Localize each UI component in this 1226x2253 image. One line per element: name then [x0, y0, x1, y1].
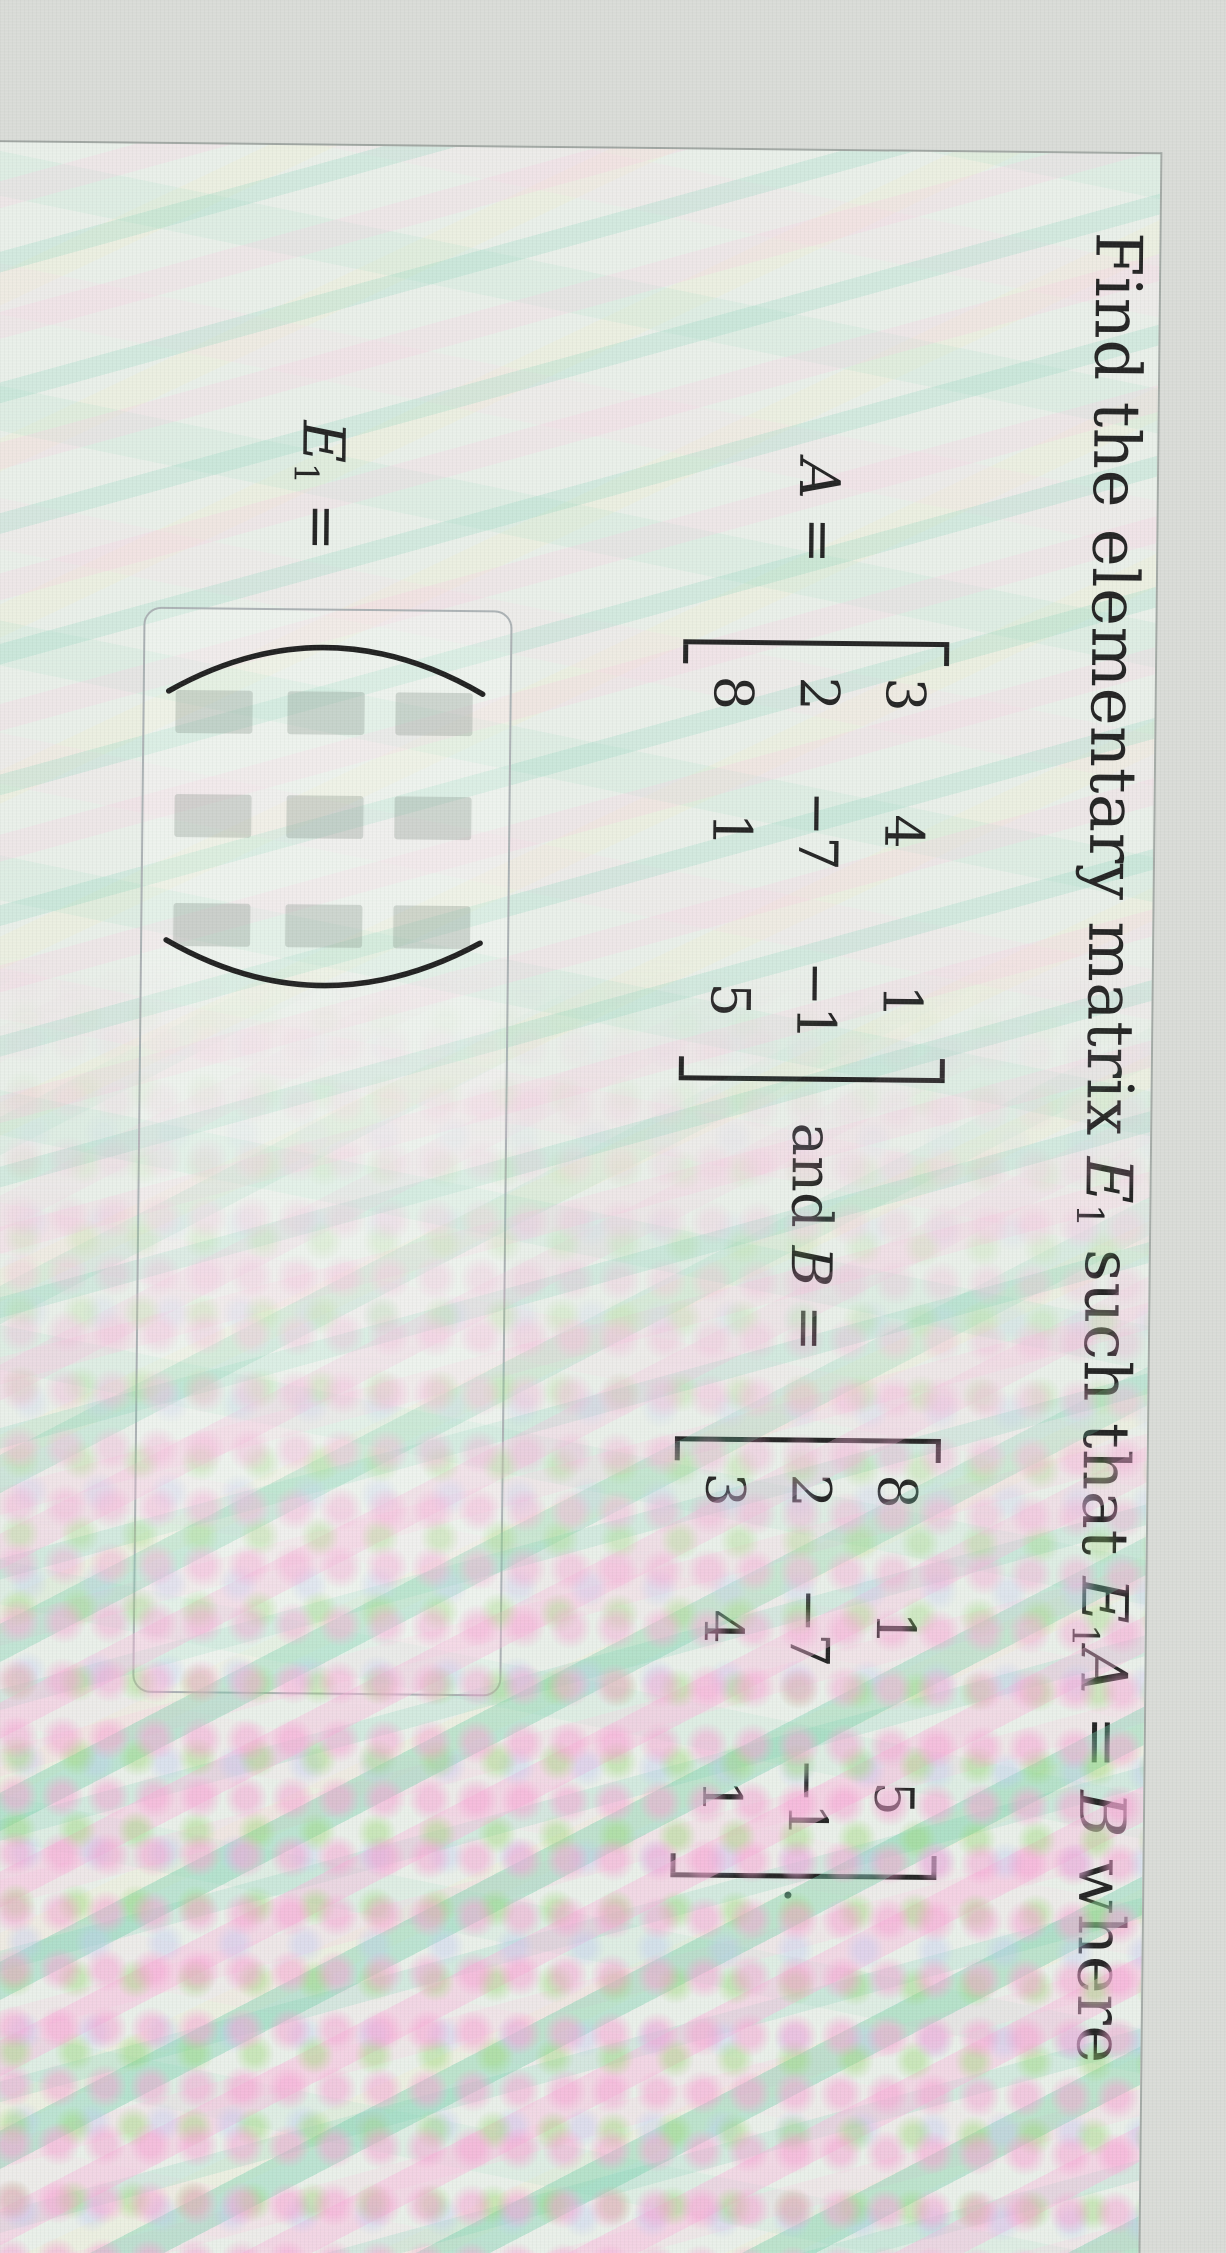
matrix-b-values: 8 1 5 2 −7 −1 3 4 1 [677, 1436, 940, 1880]
matrix-a-cell: 8 [689, 639, 776, 746]
matrix-b-cell: 1 [851, 1544, 939, 1713]
var-b: B [778, 1245, 843, 1287]
title-equals: = [1064, 1694, 1139, 1791]
problem-title: Find the elementary matrix E1 such that … [1056, 231, 1159, 2064]
var-e1-sub: 1 [287, 462, 326, 484]
answer-equals-sign: = [288, 502, 357, 551]
screen-photo: Find the elementary matrix E1 such that … [0, 0, 1226, 2253]
problem-card: Find the elementary matrix E1 such that … [0, 139, 1162, 2253]
var-a: A [786, 458, 851, 499]
matrix-a-label: A = [774, 458, 861, 564]
matrix-a-cell: 2 [775, 640, 862, 747]
title-text-pre: Find the elementary matrix [1071, 231, 1155, 1157]
a-equals-sign: = [785, 517, 850, 565]
matrix-a-cell: 4 [859, 747, 947, 916]
right-paren-icon [166, 940, 480, 987]
matrix-a-cell: 1 [687, 745, 775, 914]
title-var-e1-sub: 1 [1068, 1204, 1111, 1229]
answer-label: E1 = [278, 420, 367, 552]
matrix-b-cell: 2 [767, 1437, 854, 1544]
title-var-e1b: E [1066, 1576, 1140, 1624]
matrix-b-label: and B = [766, 1122, 854, 1352]
right-bracket-icon [679, 1056, 945, 1083]
title-text-mid: such that [1067, 1228, 1145, 1577]
b-equals-sign: = [777, 1304, 842, 1352]
title-var-b: B [1064, 1790, 1138, 1838]
matrix-a: 3 4 1 2 −7 −1 8 1 5 [675, 639, 960, 1083]
matrix-a-values: 3 4 1 2 −7 −1 8 1 5 [686, 639, 949, 1083]
sentence-period: . [760, 1886, 846, 1904]
title-text-post: where [1061, 1838, 1137, 2064]
title-var-e1: E [1070, 1156, 1144, 1204]
matrix-b-cell: 4 [679, 1542, 767, 1711]
and-text: and [778, 1122, 844, 1228]
rotated-scene: Find the elementary matrix E1 such that … [0, 0, 1226, 2253]
matrix-b-cell: 8 [853, 1438, 940, 1545]
matrix-b: 8 1 5 2 −7 −1 3 4 1 [666, 1436, 951, 1880]
left-paren-icon [169, 646, 483, 694]
matrix-b-cell: 3 [681, 1436, 768, 1543]
right-bracket-icon [670, 1853, 936, 1880]
matrix-b-cell: −7 [765, 1543, 853, 1712]
var-e1: E [289, 420, 357, 463]
matrix-a-cell: −7 [773, 746, 861, 915]
title-var-e1b-sub: 1 [1064, 1623, 1107, 1648]
matrix-parentheses [137, 594, 522, 1078]
matrix-a-cell: 3 [861, 641, 948, 748]
title-var-a: A [1065, 1648, 1139, 1695]
